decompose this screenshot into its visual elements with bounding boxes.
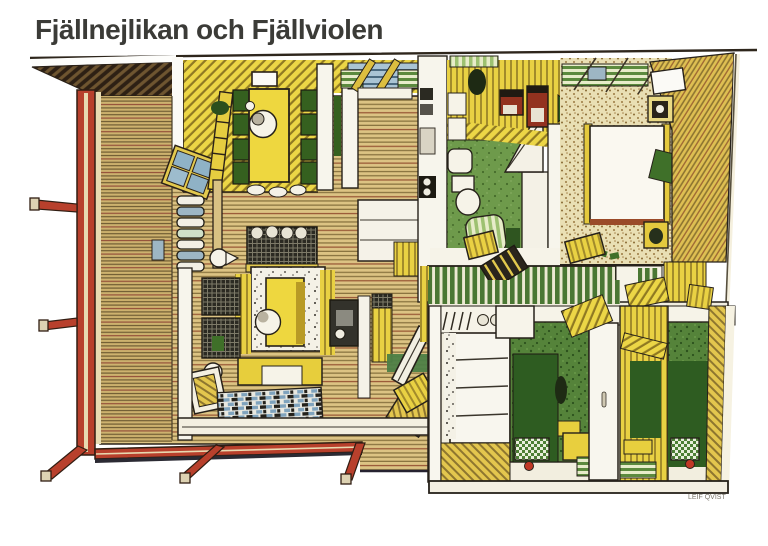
svg-text:LEIF QVIST: LEIF QVIST bbox=[688, 494, 726, 501]
